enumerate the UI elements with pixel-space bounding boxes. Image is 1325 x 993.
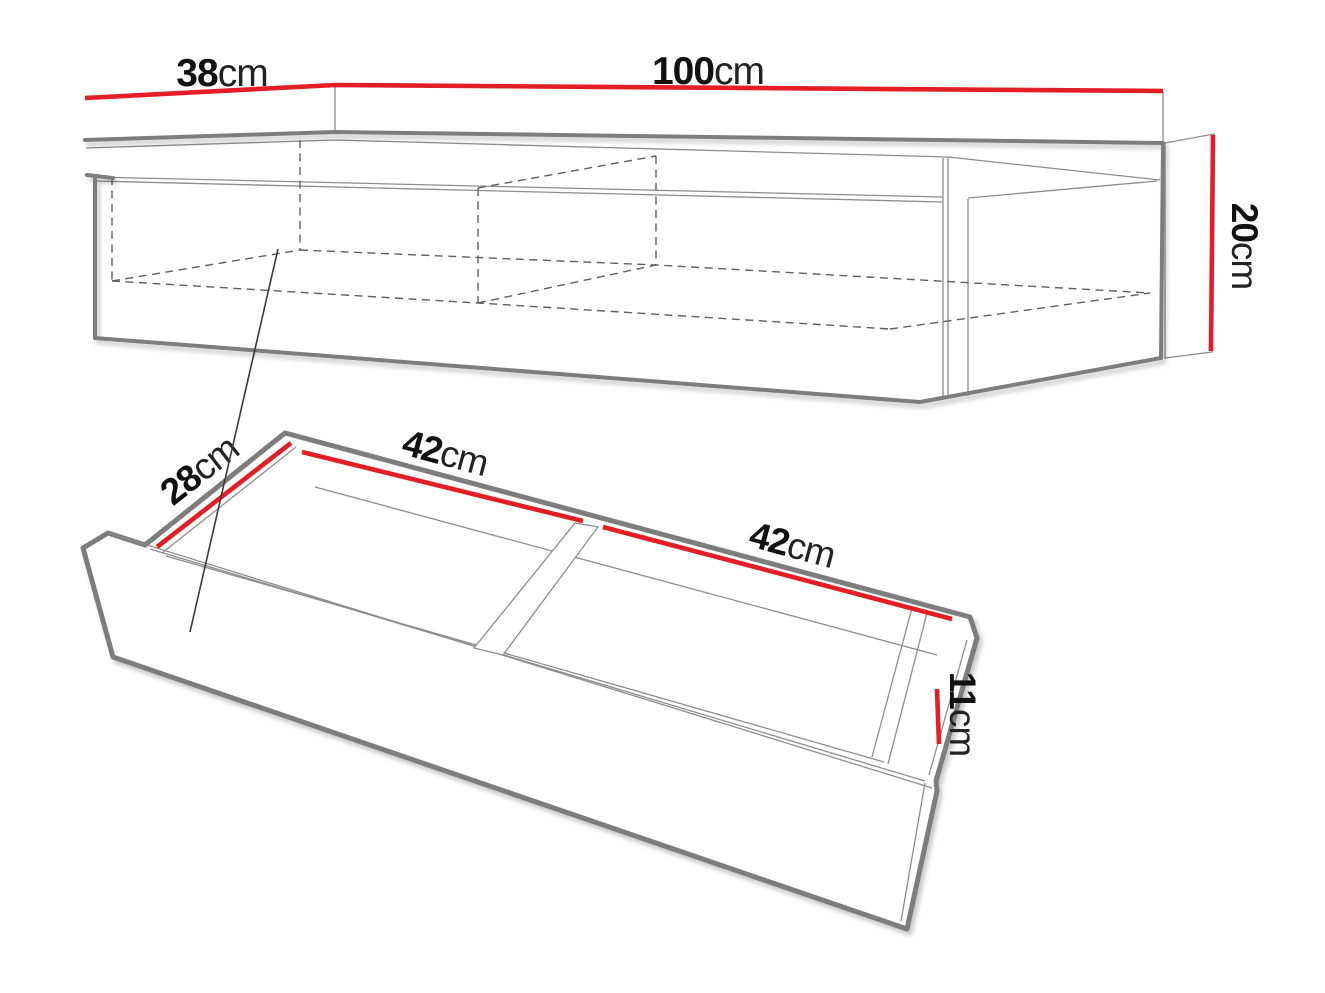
cabinet-figure: 38cm 100cm 20cm xyxy=(85,50,1265,402)
height-dimension-line xyxy=(1211,135,1213,351)
drawer-figure: 28cm 42cm 42cm 11cm xyxy=(83,422,983,929)
dimension-diagram: 38cm 100cm 20cm 28cm 42cm 42cm xyxy=(0,0,1325,993)
drawer-height-dimension-line xyxy=(937,689,939,744)
depth-value: 38 xyxy=(176,52,218,95)
right-side-panel xyxy=(1165,134,1214,358)
depth-unit: cm xyxy=(218,52,268,95)
width-value: 100 xyxy=(652,50,714,93)
height-unit: cm xyxy=(1224,242,1265,289)
depth-dimension-label: 38cm xyxy=(176,52,267,95)
drawer-height-unit: cm xyxy=(942,709,983,756)
height-dimension-label: 20cm xyxy=(1224,203,1265,289)
width-dimension-label: 100cm xyxy=(652,50,764,93)
height-value: 20 xyxy=(1224,203,1265,243)
drawer-height-value: 11 xyxy=(942,672,983,710)
drawer-height-dimension-label: 11cm xyxy=(942,672,983,756)
width-unit: cm xyxy=(714,50,764,93)
